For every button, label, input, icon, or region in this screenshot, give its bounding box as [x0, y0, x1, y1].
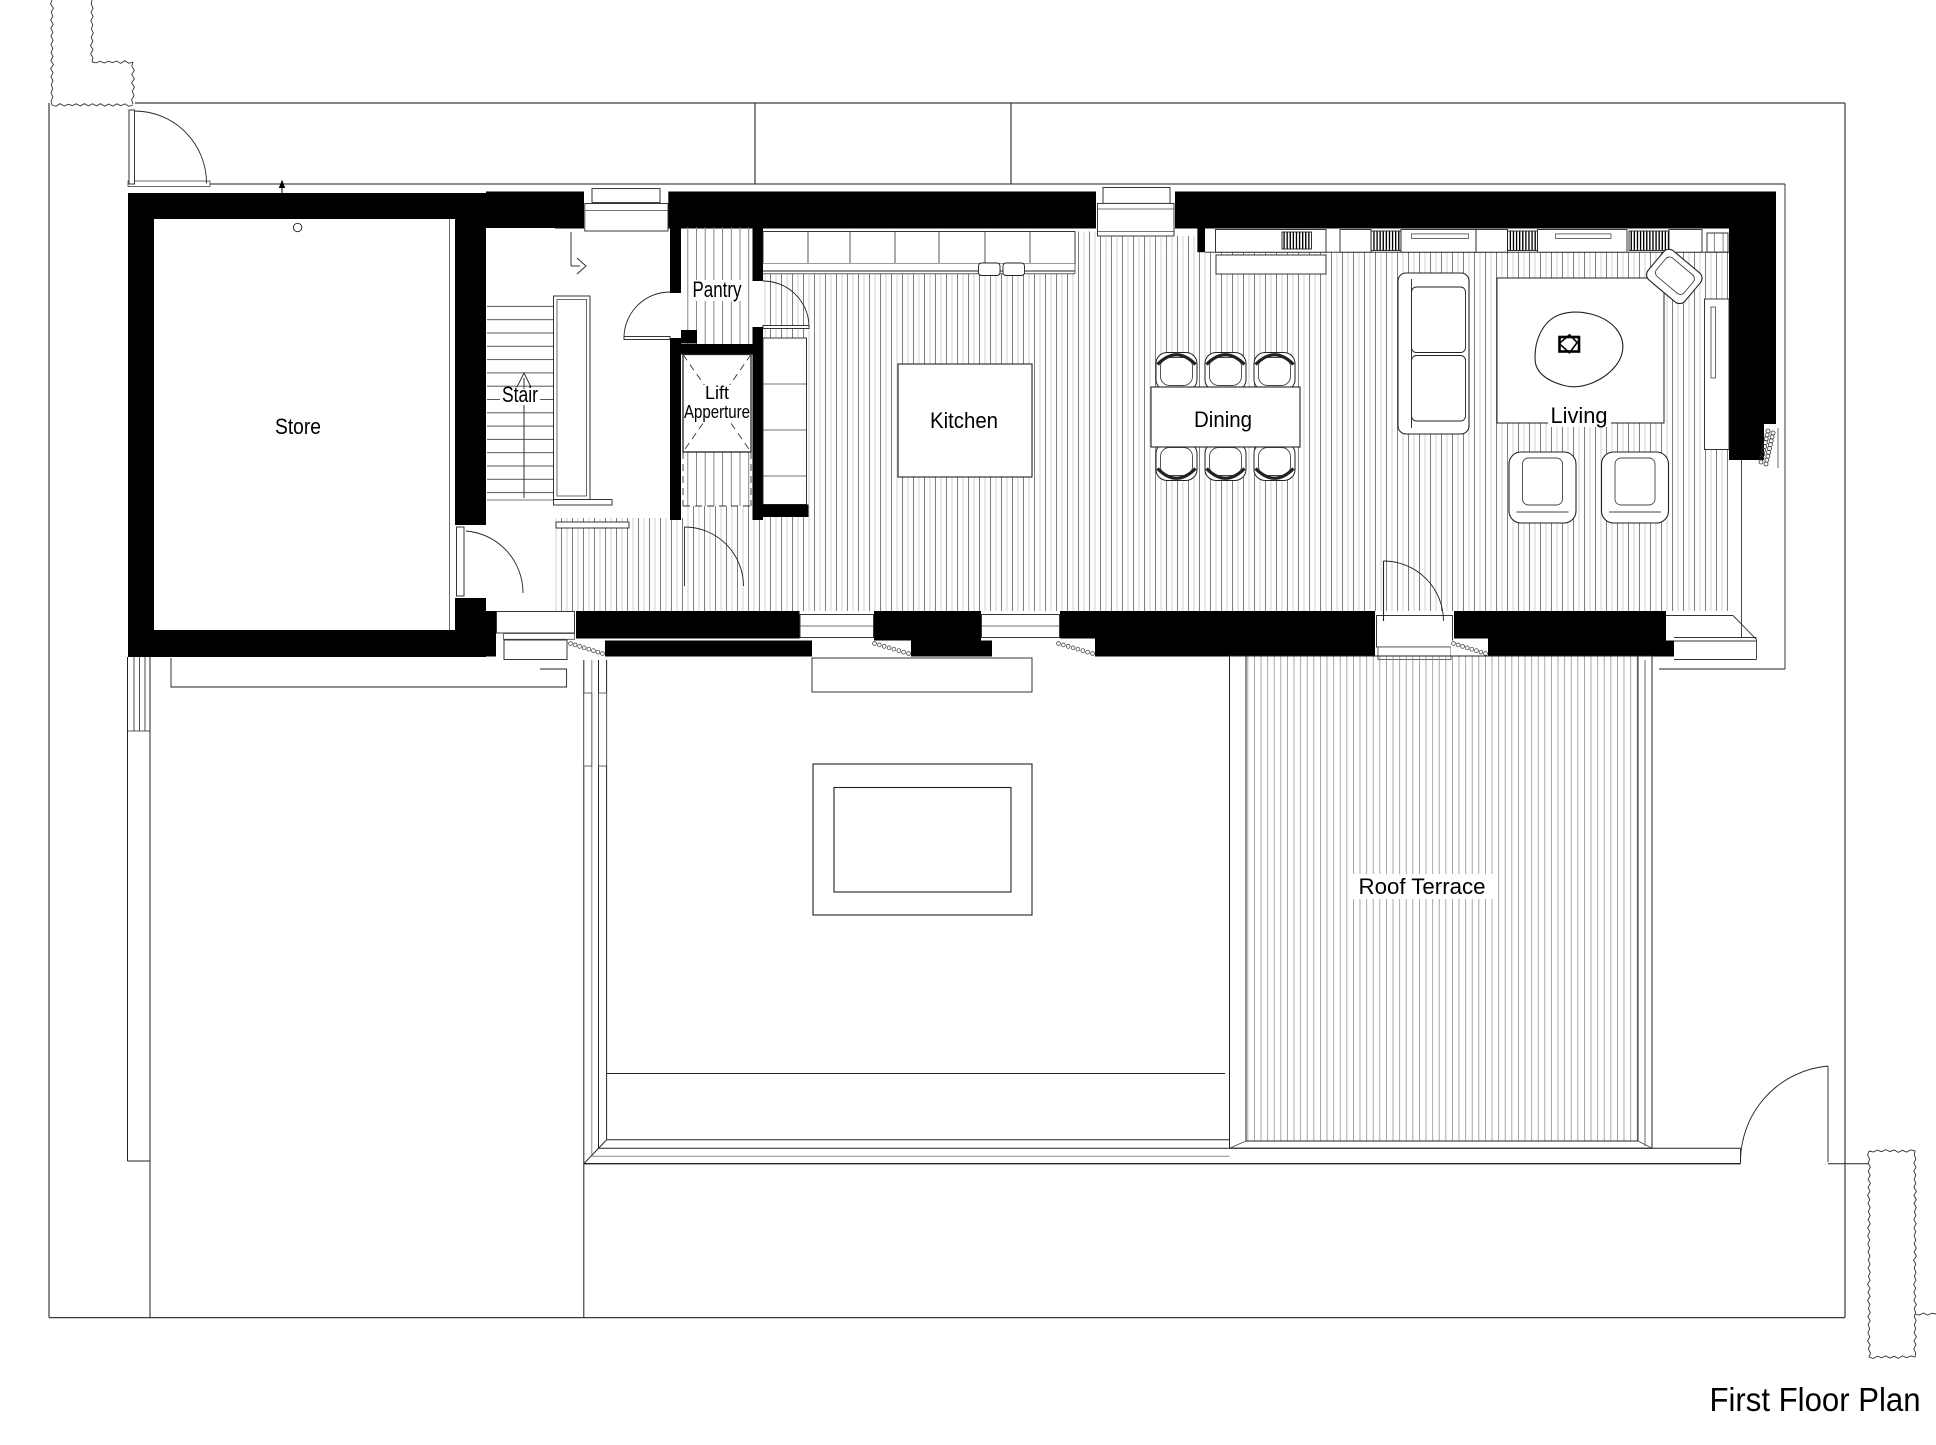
svg-text:Lift: Lift: [705, 383, 729, 403]
svg-text:Roof Terrace: Roof Terrace: [1359, 874, 1486, 899]
svg-text:Stair: Stair: [502, 382, 538, 407]
svg-text:First Floor Plan: First Floor Plan: [1710, 1381, 1921, 1418]
svg-text:Dining: Dining: [1194, 407, 1252, 432]
svg-text:Living: Living: [1551, 403, 1608, 428]
svg-text:Pantry: Pantry: [693, 277, 742, 302]
svg-text:Apperture: Apperture: [684, 402, 750, 422]
svg-text:Store: Store: [275, 414, 321, 439]
svg-text:Kitchen: Kitchen: [930, 408, 998, 433]
